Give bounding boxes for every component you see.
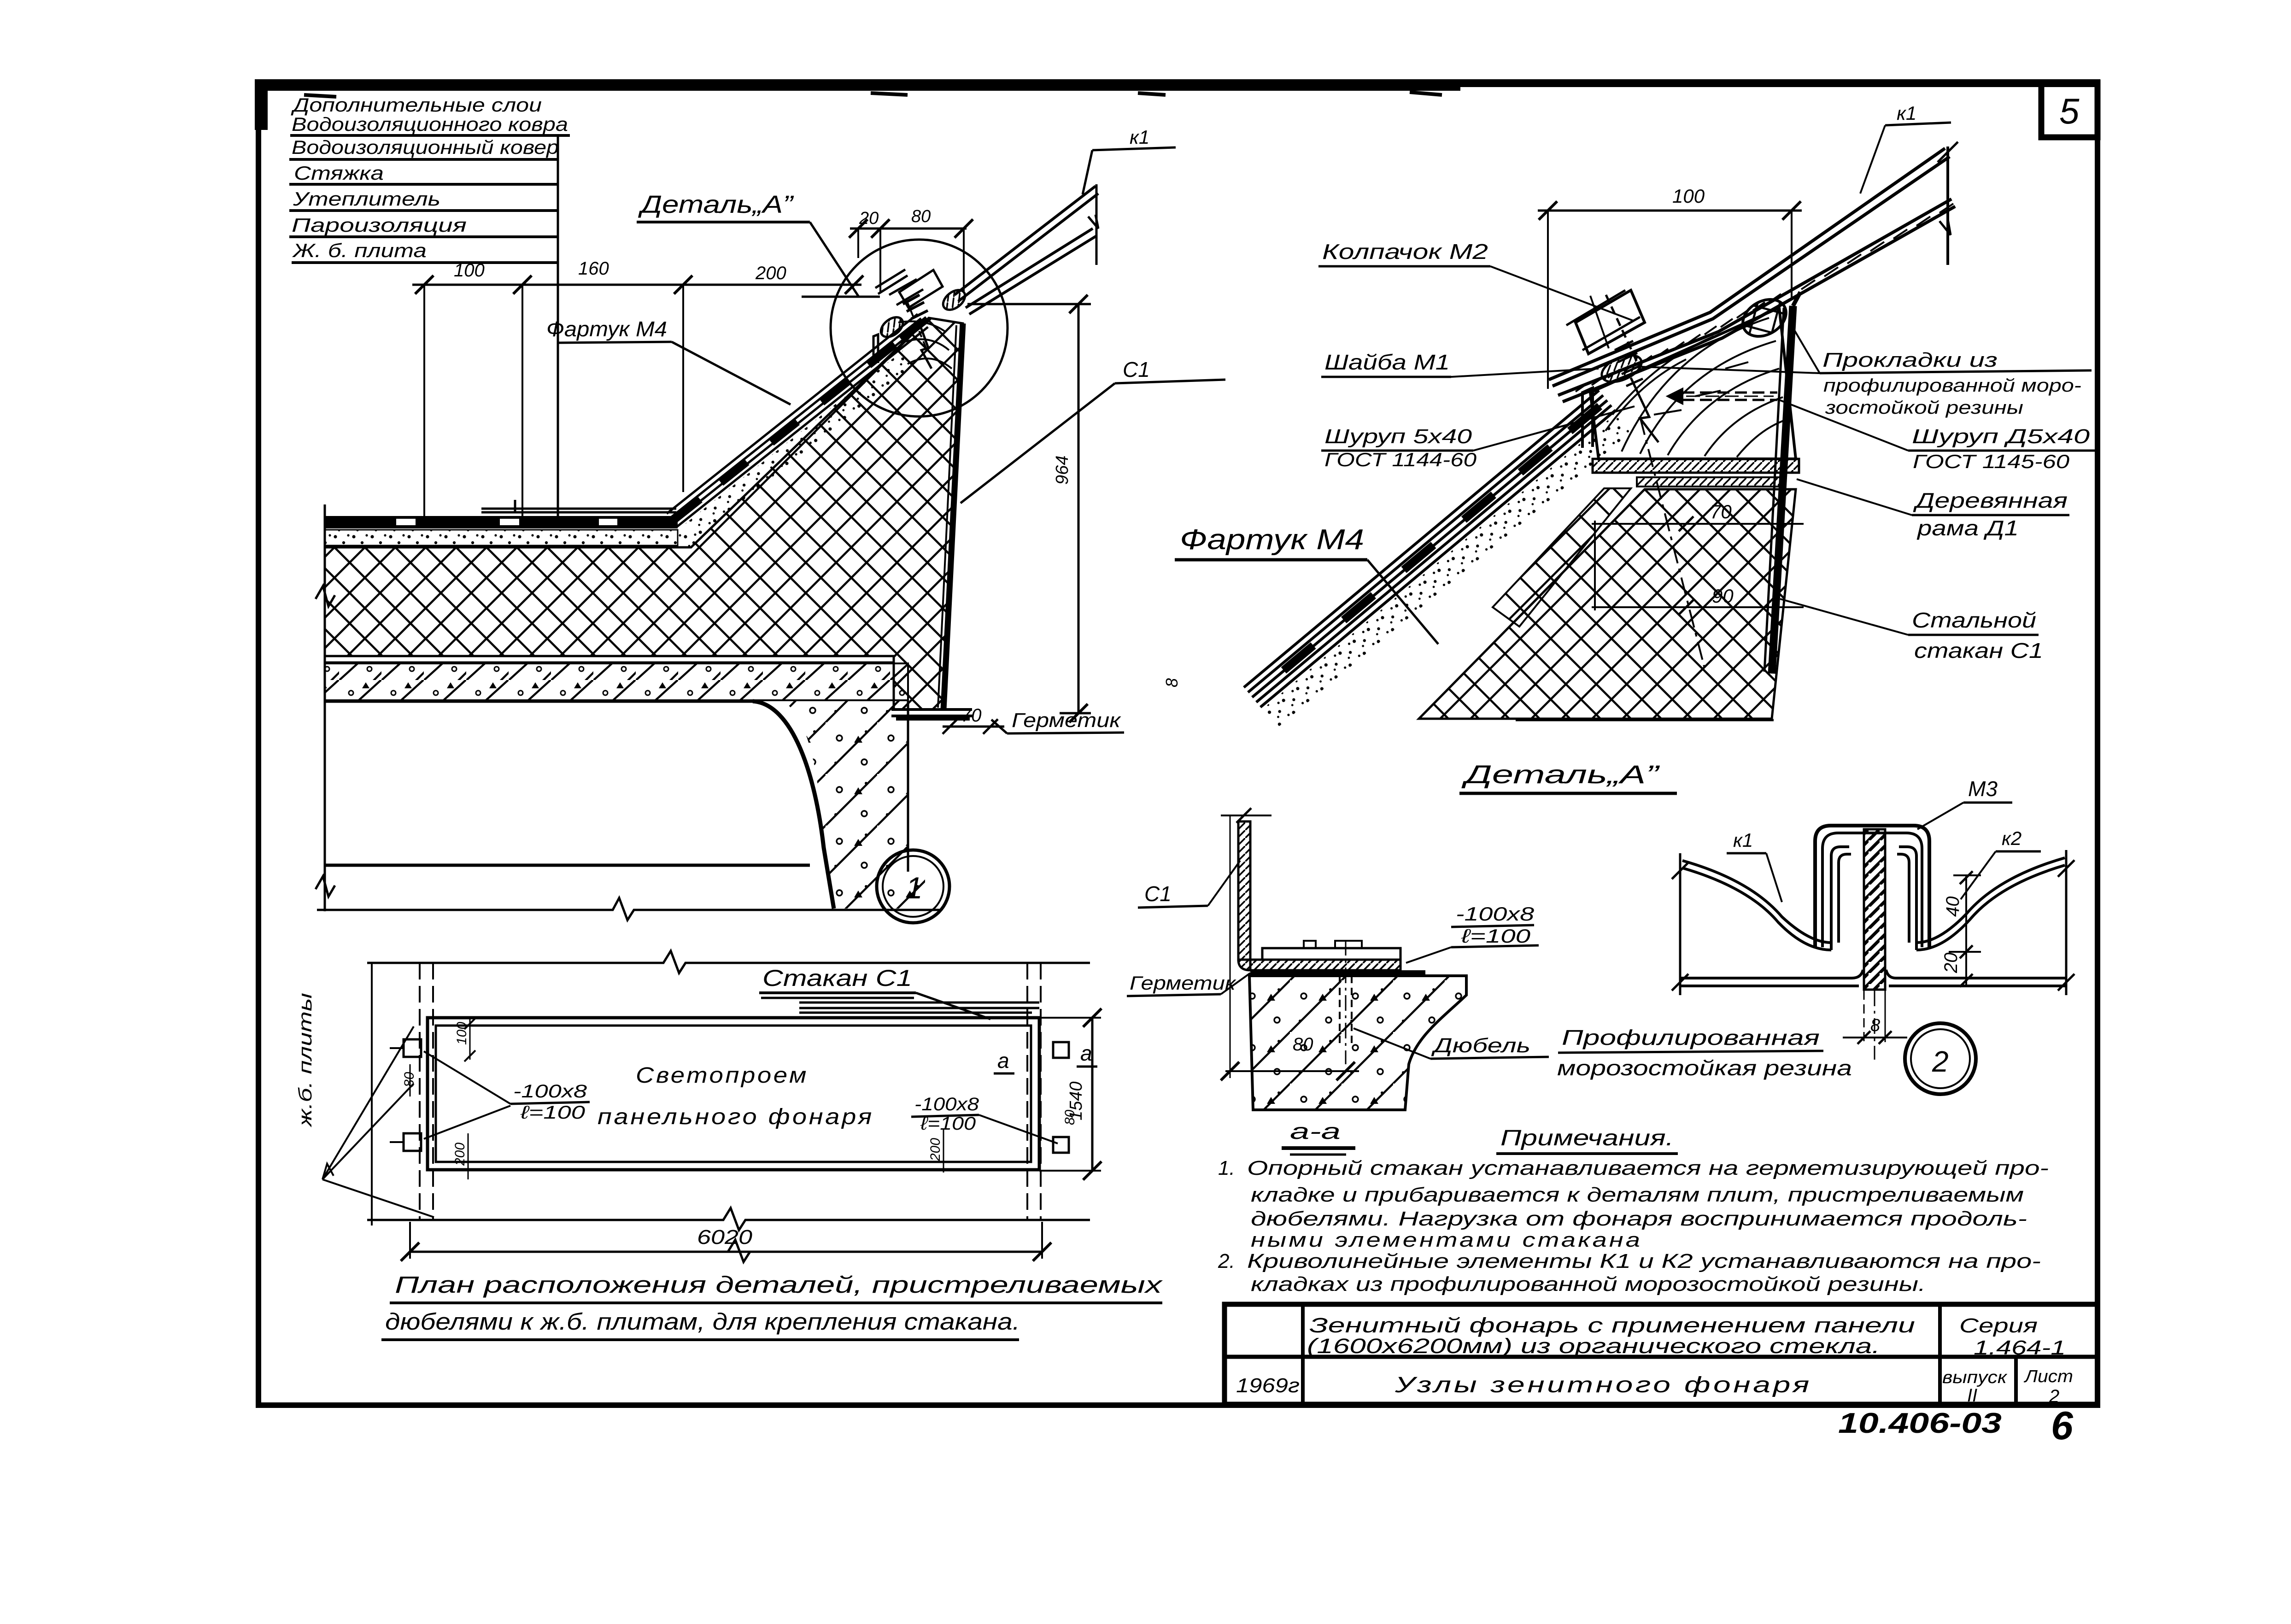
svg-text:к1: к1 bbox=[1130, 126, 1149, 148]
svg-text:70: 70 bbox=[961, 705, 982, 726]
svg-text:1969г: 1969г bbox=[1236, 1374, 1300, 1397]
svg-text:90: 90 bbox=[1712, 585, 1734, 607]
svg-text:Шуруп 5х40: Шуруп 5х40 bbox=[1324, 425, 1472, 448]
svg-text:ГОСТ 1145-60: ГОСТ 1145-60 bbox=[1913, 451, 2070, 472]
svg-text:а: а bbox=[1080, 1041, 1092, 1065]
svg-text:ными элементами стакана: ными элементами стакана bbox=[1251, 1229, 1642, 1251]
svg-text:40: 40 bbox=[1943, 897, 1963, 917]
svg-text:-100х8: -100х8 bbox=[1456, 903, 1535, 925]
svg-text:Профилированная: Профилированная bbox=[1562, 1026, 1820, 1049]
svg-text:Фартук М4: Фартук М4 bbox=[546, 317, 667, 341]
svg-text:Дюбель: Дюбель bbox=[1430, 1034, 1530, 1057]
svg-text:80: 80 bbox=[1293, 1034, 1313, 1055]
svg-text:Водоизоляционного ковра: Водоизоляционного ковра bbox=[292, 113, 568, 135]
svg-text:ГОСТ 1144-60: ГОСТ 1144-60 bbox=[1324, 449, 1477, 470]
svg-text:рама Д1: рама Д1 bbox=[1916, 516, 2019, 540]
svg-text:дюбелями к ж.б. плитам, для кр: дюбелями к ж.б. плитам, для крепления ст… bbox=[385, 1308, 1020, 1335]
svg-text:1: 1 bbox=[906, 871, 923, 905]
svg-text:Серия: Серия bbox=[1959, 1314, 2038, 1337]
svg-text:Водоизоляционный ковер: Водоизоляционный ковер bbox=[292, 136, 559, 158]
svg-text:-100х8: -100х8 bbox=[914, 1094, 979, 1114]
svg-text:панельного фонаря: панельного фонаря bbox=[598, 1105, 874, 1129]
svg-text:6: 6 bbox=[2051, 1404, 2074, 1448]
svg-text:2.: 2. bbox=[1218, 1250, 1235, 1272]
svg-text:М3: М3 bbox=[1968, 777, 1998, 801]
svg-text:План расположения деталей, при: План расположения деталей, пристреливаем… bbox=[395, 1272, 1163, 1298]
svg-text:Пароизоляция: Пароизоляция bbox=[292, 214, 467, 236]
svg-text:Утеплитель: Утеплитель bbox=[293, 188, 440, 210]
svg-text:дюбелями. Нагрузка от фонаря в: дюбелями. Нагрузка от фонаря воспринимае… bbox=[1251, 1208, 2027, 1230]
svg-text:Фартук М4: Фартук М4 bbox=[1180, 524, 1364, 556]
svg-text:стакан С1: стакан С1 bbox=[1914, 639, 2043, 662]
svg-text:70: 70 bbox=[1710, 501, 1732, 522]
svg-text:10.406-03: 10.406-03 bbox=[1838, 1407, 2002, 1439]
svg-text:(1600х6200мм) из органического: (1600х6200мм) из органического стекла. bbox=[1307, 1334, 1880, 1358]
svg-text:Герметик: Герметик bbox=[1012, 709, 1122, 732]
svg-text:Примечания.: Примечания. bbox=[1500, 1126, 1674, 1150]
svg-text:ℓ=100: ℓ=100 bbox=[520, 1102, 585, 1123]
svg-text:1540: 1540 bbox=[1066, 1081, 1086, 1120]
svg-text:200: 200 bbox=[928, 1138, 943, 1161]
svg-text:Зенитный фонарь с применением: Зенитный фонарь с применением панели bbox=[1309, 1313, 1915, 1337]
svg-text:С1: С1 bbox=[1144, 882, 1172, 906]
svg-text:кладках из профилированной мор: кладках из профилированной морозостойкой… bbox=[1251, 1273, 1926, 1296]
svg-text:кладке и прибаривается к детал: кладке и прибаривается к деталям плит, п… bbox=[1251, 1184, 2024, 1206]
svg-text:6020: 6020 bbox=[697, 1226, 753, 1249]
svg-text:Дополнительные слои: Дополнительные слои bbox=[291, 94, 542, 116]
svg-text:200: 200 bbox=[452, 1143, 468, 1166]
svg-text:ℓ=100: ℓ=100 bbox=[1461, 925, 1531, 947]
svg-text:к1: к1 bbox=[1733, 829, 1753, 851]
svg-text:С1: С1 bbox=[1123, 358, 1150, 381]
svg-text:2: 2 bbox=[1932, 1045, 1949, 1078]
svg-text:-100х8: -100х8 bbox=[513, 1081, 587, 1102]
svg-text:Опорный стакан устанавливается: Опорный стакан устанавливается на гермет… bbox=[1247, 1157, 2049, 1179]
svg-text:100: 100 bbox=[454, 260, 485, 281]
svg-text:ℓ=100: ℓ=100 bbox=[920, 1114, 976, 1134]
svg-text:а-а: а-а bbox=[1290, 1120, 1341, 1144]
svg-text:Светопроем: Светопроем bbox=[636, 1063, 809, 1088]
svg-text:80: 80 bbox=[911, 207, 931, 226]
svg-text:к2: к2 bbox=[2002, 827, 2021, 849]
svg-text:зостойкой резины: зостойкой резины bbox=[1825, 398, 2023, 418]
svg-text:1.464-1: 1.464-1 bbox=[1974, 1337, 2066, 1359]
svg-text:II: II bbox=[1967, 1385, 1977, 1406]
svg-text:Узлы зенитного фонаря: Узлы зенитного фонаря bbox=[1395, 1373, 1812, 1397]
svg-text:8: 8 bbox=[1162, 678, 1181, 687]
svg-text:Стакан С1: Стакан С1 bbox=[762, 965, 912, 991]
svg-text:5: 5 bbox=[2059, 91, 2080, 131]
svg-text:Шайба М1: Шайба М1 bbox=[1324, 350, 1450, 374]
svg-text:8: 8 bbox=[1870, 1016, 1880, 1035]
svg-text:200: 200 bbox=[755, 263, 786, 283]
svg-text:к1: к1 bbox=[1897, 102, 1916, 124]
svg-text:Стяжка: Стяжка bbox=[294, 162, 384, 184]
svg-text:выпуск: выпуск bbox=[1942, 1368, 2008, 1387]
svg-text:морозостойкая резина: морозостойкая резина bbox=[1557, 1056, 1852, 1080]
svg-text:Деталь„А”: Деталь„А” bbox=[638, 191, 794, 218]
svg-text:Прокладки из: Прокладки из bbox=[1822, 349, 1998, 371]
svg-text:964: 964 bbox=[1053, 456, 1072, 485]
svg-text:Ж. б. плита: Ж. б. плита bbox=[292, 240, 427, 261]
svg-text:Лист: Лист bbox=[2023, 1367, 2073, 1386]
svg-text:100: 100 bbox=[1672, 185, 1705, 207]
svg-text:Колпачок М2: Колпачок М2 bbox=[1322, 240, 1488, 264]
svg-text:профилированной моро-: профилированной моро- bbox=[1823, 375, 2081, 396]
svg-text:160: 160 bbox=[578, 258, 609, 279]
svg-text:Деталь„А”: Деталь„А” bbox=[1461, 760, 1660, 789]
svg-text:а: а bbox=[997, 1049, 1009, 1073]
svg-text:20: 20 bbox=[859, 209, 879, 228]
svg-text:Деревянная: Деревянная bbox=[1913, 488, 2068, 512]
svg-text:1.: 1. bbox=[1218, 1157, 1235, 1179]
svg-text:Шуруп Д5х40: Шуруп Д5х40 bbox=[1912, 425, 2090, 448]
svg-text:Стальной: Стальной bbox=[1912, 608, 2036, 632]
svg-text:Криволинейные элементы К1 и К2: Криволинейные элементы К1 и К2 устанавли… bbox=[1247, 1250, 2041, 1272]
svg-text:ж.б. плиты: ж.б. плиты bbox=[295, 993, 316, 1128]
svg-text:20: 20 bbox=[1941, 953, 1961, 974]
svg-text:Герметик: Герметик bbox=[1130, 972, 1237, 994]
